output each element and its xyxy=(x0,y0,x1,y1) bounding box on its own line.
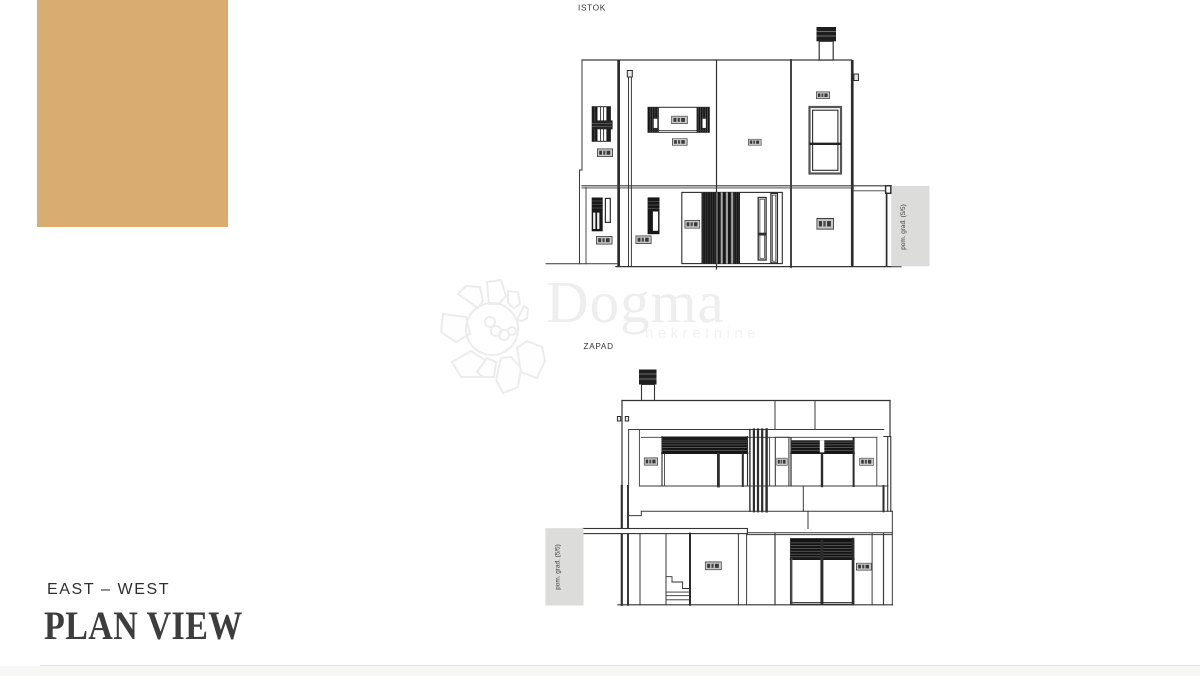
svg-text:ZAPAD: ZAPAD xyxy=(584,342,614,351)
svg-text:pom. građ. (5/5): pom. građ. (5/5) xyxy=(555,544,562,589)
svg-text:ISTOK: ISTOK xyxy=(578,4,606,13)
svg-text:pom. građ. (5/5): pom. građ. (5/5) xyxy=(900,204,907,249)
